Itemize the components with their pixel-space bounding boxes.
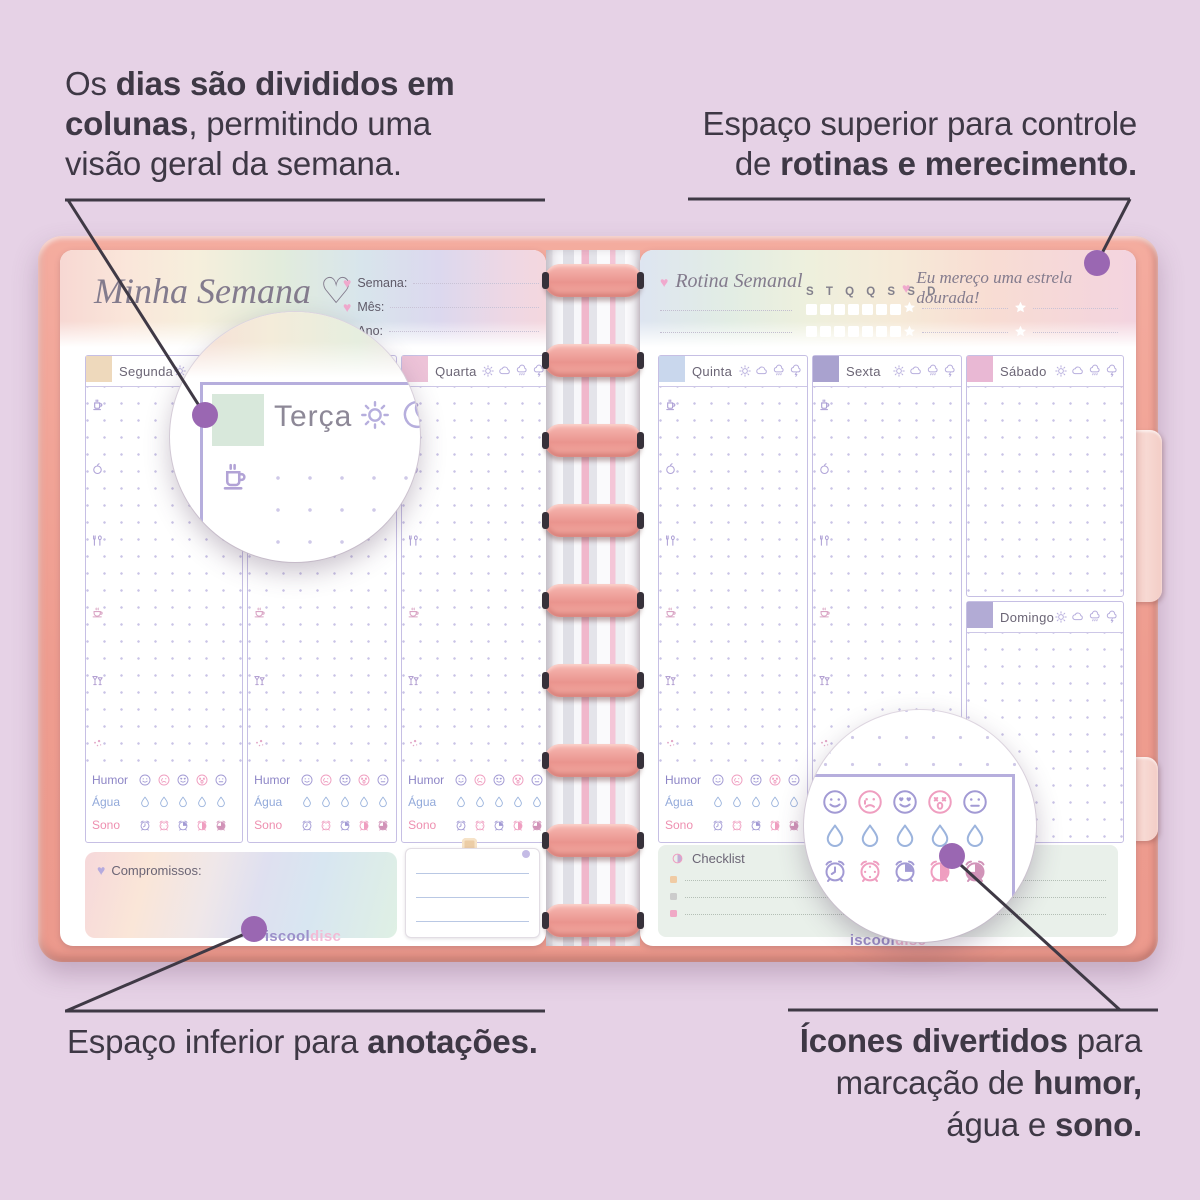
heart-icon: ♥ bbox=[902, 281, 910, 295]
water-drop-icon bbox=[157, 795, 171, 809]
tracker: Humor Água Sono bbox=[402, 764, 546, 842]
mood-shock-icon bbox=[925, 787, 955, 817]
magnified-dot-grid bbox=[262, 462, 412, 548]
mood-happy-icon bbox=[454, 773, 468, 787]
storm-cloud-icon bbox=[1105, 364, 1119, 378]
star-doodle-icon bbox=[822, 744, 834, 756]
cutlery-icon bbox=[663, 533, 678, 548]
mood-love-icon bbox=[890, 787, 920, 817]
coffee-icon bbox=[817, 397, 832, 412]
write-line bbox=[1033, 331, 1119, 333]
star-doodle-icon bbox=[838, 730, 846, 738]
agua-label: Água bbox=[408, 795, 452, 809]
binding-disc bbox=[544, 664, 642, 697]
weather-icons bbox=[892, 364, 957, 378]
sparkle-icon bbox=[522, 850, 530, 858]
mood-neutral-icon bbox=[787, 773, 801, 787]
day-color-square bbox=[212, 394, 264, 446]
write-line bbox=[922, 331, 1008, 333]
clock-dots-icon bbox=[319, 818, 333, 832]
magnified-column-border bbox=[1012, 774, 1015, 942]
clock-threequarter-icon bbox=[530, 818, 544, 832]
water-drop-icon bbox=[855, 821, 885, 851]
sun-icon bbox=[481, 364, 495, 378]
routine-checkbox-row bbox=[806, 326, 901, 337]
water-drop-icon bbox=[730, 795, 744, 809]
clock-quarter-icon bbox=[176, 818, 190, 832]
sono-label: Sono bbox=[254, 818, 298, 832]
mood-icons bbox=[454, 773, 544, 787]
sono-row: Sono bbox=[408, 816, 544, 834]
moon-icon bbox=[398, 396, 420, 432]
water-drop-icon bbox=[511, 795, 525, 809]
humor-row: Humor bbox=[665, 771, 801, 789]
rain-cloud-icon bbox=[926, 364, 940, 378]
storm-cloud-icon bbox=[789, 364, 803, 378]
write-line bbox=[413, 282, 539, 284]
cloud-icon bbox=[1071, 364, 1085, 378]
clock-threequarter-icon bbox=[214, 818, 228, 832]
day-name: Segunda bbox=[119, 364, 173, 379]
callout-segment: , permitindo uma bbox=[188, 105, 431, 142]
routine-checkbox bbox=[848, 304, 859, 315]
storm-cloud-icon bbox=[1105, 610, 1119, 624]
callout-segment: Espaço inferior para bbox=[67, 1023, 367, 1060]
water-drop-icon bbox=[195, 795, 209, 809]
water-drop-icon bbox=[338, 795, 352, 809]
coffee-icon bbox=[216, 458, 252, 494]
sono-row: Sono bbox=[665, 816, 801, 834]
binding-disc bbox=[544, 584, 642, 617]
callout-segment: colunas bbox=[65, 105, 188, 142]
water-icons bbox=[454, 795, 544, 809]
rain-cloud-icon bbox=[1088, 364, 1102, 378]
humor-label: Humor bbox=[665, 773, 709, 787]
mood-neutral-icon bbox=[960, 787, 990, 817]
mood-love-icon bbox=[338, 773, 352, 787]
clock-threequarter-icon bbox=[376, 818, 390, 832]
sparkle-icon bbox=[663, 737, 678, 752]
water-drop-icon bbox=[138, 795, 152, 809]
callout-segment: humor, bbox=[1033, 1064, 1142, 1101]
binding-disc bbox=[544, 504, 642, 537]
callout-segment: de bbox=[735, 145, 780, 182]
note-line bbox=[416, 897, 529, 898]
clock-quarter-icon bbox=[749, 818, 763, 832]
apple-icon bbox=[817, 461, 832, 476]
binding-disc bbox=[544, 344, 642, 377]
day-name: Quinta bbox=[692, 364, 732, 379]
sun-icon bbox=[892, 364, 906, 378]
routine-checkbox bbox=[862, 326, 873, 337]
magnified-column-border bbox=[200, 382, 203, 562]
brand-logo: iscooldisc bbox=[60, 928, 546, 945]
routine-checkbox bbox=[890, 326, 901, 337]
rain-cloud-icon bbox=[772, 364, 786, 378]
water-drop-icon bbox=[711, 795, 725, 809]
cloud-icon bbox=[1071, 610, 1085, 624]
routine-checkbox bbox=[848, 326, 859, 337]
water-drop-icon bbox=[376, 795, 390, 809]
rain-cloud-icon bbox=[515, 364, 529, 378]
clock-empty-icon bbox=[711, 818, 725, 832]
notes-card bbox=[405, 848, 540, 938]
day-color-square bbox=[659, 356, 685, 382]
water-icons bbox=[820, 821, 1002, 851]
field-label: Semana: bbox=[357, 276, 407, 290]
teacup-icon bbox=[90, 605, 105, 620]
magnified-tracker-grid bbox=[820, 787, 1002, 885]
rain-cloud-icon bbox=[1088, 610, 1102, 624]
water-drop-icon bbox=[357, 795, 371, 809]
cocktail-icon bbox=[252, 673, 267, 688]
mood-love-icon bbox=[176, 773, 190, 787]
cocktail-icon bbox=[663, 673, 678, 688]
water-drop-icon bbox=[820, 821, 850, 851]
star-icon bbox=[1013, 324, 1028, 339]
mood-sad-icon bbox=[855, 787, 885, 817]
magnified-column-border bbox=[200, 382, 420, 385]
page-title: Minha Semana ♡ bbox=[94, 270, 352, 312]
agua-row: Água bbox=[408, 793, 544, 811]
mood-sad-icon bbox=[319, 773, 333, 787]
water-icons bbox=[711, 795, 801, 809]
mood-love-icon bbox=[749, 773, 763, 787]
coffee-icon bbox=[90, 397, 105, 412]
write-line bbox=[922, 307, 1008, 309]
clock-dots-icon bbox=[473, 818, 487, 832]
checklist-bullet bbox=[670, 876, 677, 883]
water-drop-icon bbox=[960, 821, 990, 851]
binding-disc bbox=[544, 824, 642, 857]
mood-sad-icon bbox=[473, 773, 487, 787]
day-color-square bbox=[86, 356, 112, 382]
sparkle-icon bbox=[90, 737, 105, 752]
product-infographic: Minha Semana ♡ ♥Semana: ♥Mês: ♥Ano: Segu… bbox=[0, 0, 1200, 1200]
clock-quarter-icon bbox=[492, 818, 506, 832]
humor-row: Humor bbox=[92, 771, 236, 789]
write-line bbox=[390, 306, 539, 308]
teacup-icon bbox=[406, 605, 421, 620]
apple-icon bbox=[90, 461, 105, 476]
water-drop-icon bbox=[214, 795, 228, 809]
sleep-icons bbox=[820, 855, 1002, 885]
star-reward-row bbox=[902, 300, 1118, 315]
mood-happy-icon bbox=[300, 773, 314, 787]
clock-half-icon bbox=[357, 818, 371, 832]
day-name: Domingo bbox=[1000, 610, 1054, 625]
routine-checkbox bbox=[876, 304, 887, 315]
callout-segment: sono. bbox=[1055, 1106, 1142, 1143]
tracker: Humor Água Sono bbox=[86, 764, 242, 842]
star-icon bbox=[1013, 300, 1028, 315]
agua-row: Água bbox=[92, 793, 236, 811]
water-drop-icon bbox=[768, 795, 782, 809]
heart-icon: ♥ bbox=[97, 862, 105, 878]
water-drop-icon bbox=[300, 795, 314, 809]
callout-segment: água e bbox=[946, 1106, 1055, 1143]
coffee-icon bbox=[663, 397, 678, 412]
teacup-icon bbox=[663, 605, 678, 620]
mood-happy-icon bbox=[711, 773, 725, 787]
day-name: Sábado bbox=[1000, 364, 1047, 379]
sparkle-icon bbox=[406, 737, 421, 752]
cocktail-icon bbox=[817, 673, 832, 688]
callout-segment: para bbox=[1068, 1022, 1142, 1059]
field-semana: ♥Semana: bbox=[343, 274, 539, 292]
teacup-icon bbox=[817, 605, 832, 620]
mood-neutral-icon bbox=[376, 773, 390, 787]
note-line bbox=[416, 921, 529, 922]
checklist-bullet bbox=[670, 910, 677, 917]
mood-icons bbox=[138, 773, 228, 787]
checklist-bullet bbox=[670, 893, 677, 900]
cocktail-icon bbox=[406, 673, 421, 688]
callout-segment: Espaço superior para controle bbox=[703, 105, 1137, 142]
water-drop-icon bbox=[890, 821, 920, 851]
sono-row: Sono bbox=[92, 816, 236, 834]
mood-shock-icon bbox=[511, 773, 525, 787]
water-icons bbox=[300, 795, 390, 809]
callout-text-top-right: Espaço superior para controlede rotinas … bbox=[703, 104, 1137, 184]
day-header: Sexta bbox=[813, 356, 961, 387]
humor-label: Humor bbox=[92, 773, 136, 787]
cloud-icon bbox=[909, 364, 923, 378]
routine-checkbox bbox=[806, 326, 817, 337]
heart-icon: ♥ bbox=[343, 276, 351, 290]
storm-cloud-icon bbox=[943, 364, 957, 378]
routine-checkbox bbox=[820, 326, 831, 337]
callout-segment: marcação de bbox=[836, 1064, 1034, 1101]
water-drop-icon bbox=[749, 795, 763, 809]
callout-text-bottom-right: Ícones divertidos paramarcação de humor,… bbox=[800, 1020, 1142, 1146]
routine-checkbox bbox=[876, 326, 887, 337]
sono-label: Sono bbox=[92, 818, 136, 832]
water-drop-icon bbox=[492, 795, 506, 809]
mood-love-icon bbox=[492, 773, 506, 787]
water-drop-icon bbox=[473, 795, 487, 809]
heart-icon: ♥ bbox=[660, 275, 668, 289]
sun-icon bbox=[1054, 364, 1068, 378]
day-box-sabado: Sábado bbox=[966, 355, 1124, 597]
clock-quarter-icon bbox=[338, 818, 352, 832]
binding-disc bbox=[544, 744, 642, 777]
teacup-icon bbox=[252, 605, 267, 620]
magnifier-tracker-icons bbox=[804, 710, 1036, 942]
mood-shock-icon bbox=[195, 773, 209, 787]
binding-disc bbox=[544, 264, 642, 297]
routine-checkbox-row bbox=[806, 304, 901, 315]
magnified-day-name: Terça bbox=[274, 400, 352, 434]
binding-disc bbox=[544, 424, 642, 457]
clock-threequarter-icon bbox=[960, 855, 990, 885]
weather-icons bbox=[1054, 610, 1119, 624]
day-column-quarta: Quarta Humor Água Sono bbox=[401, 355, 546, 843]
callout-segment: dias são divididos em bbox=[116, 65, 455, 102]
cutlery-icon bbox=[817, 533, 832, 548]
star-icon bbox=[902, 300, 917, 315]
star-reward-row bbox=[902, 324, 1118, 339]
water-drop-icon bbox=[925, 821, 955, 851]
mood-happy-icon bbox=[820, 787, 850, 817]
callout-text-bottom-left: Espaço inferior para anotações. bbox=[67, 1022, 538, 1062]
day-header: Domingo bbox=[967, 602, 1123, 633]
compromissos-box: ♥Compromissos: bbox=[85, 852, 397, 938]
cloud-icon bbox=[755, 364, 769, 378]
day-name: Quarta bbox=[435, 364, 477, 379]
water-drop-icon bbox=[787, 795, 801, 809]
humor-row: Humor bbox=[408, 771, 544, 789]
day-header: Sábado bbox=[967, 356, 1123, 387]
sparkle-icon bbox=[252, 737, 267, 752]
clock-empty-icon bbox=[138, 818, 152, 832]
sono-row: Sono bbox=[254, 816, 390, 834]
water-icons bbox=[138, 795, 228, 809]
clock-empty-icon bbox=[300, 818, 314, 832]
routine-checkbox bbox=[834, 326, 845, 337]
sleep-icons bbox=[454, 818, 544, 832]
magnified-dot-grid bbox=[804, 710, 1036, 772]
sleep-icons bbox=[138, 818, 228, 832]
clock-dots-icon bbox=[730, 818, 744, 832]
write-line bbox=[660, 332, 792, 333]
agua-row: Água bbox=[665, 793, 801, 811]
binding-disc bbox=[544, 904, 642, 937]
clock-quarter-icon bbox=[890, 855, 920, 885]
mood-shock-icon bbox=[768, 773, 782, 787]
callout-segment: Os bbox=[65, 65, 116, 102]
agua-label: Água bbox=[665, 795, 709, 809]
routine-checkbox bbox=[834, 304, 845, 315]
day-column-quinta: Quinta Humor Água Sono bbox=[658, 355, 808, 843]
humor-label: Humor bbox=[254, 773, 298, 787]
compromissos-label: Compromissos: bbox=[111, 863, 201, 878]
sono-label: Sono bbox=[408, 818, 452, 832]
water-drop-icon bbox=[176, 795, 190, 809]
sun-icon bbox=[738, 364, 752, 378]
note-line bbox=[416, 873, 529, 874]
rotina-semanal-title: ♥Rotina Semanal bbox=[660, 270, 803, 293]
checklist-label: Checklist bbox=[692, 851, 745, 866]
sono-label: Sono bbox=[665, 818, 709, 832]
clock-dots-icon bbox=[855, 855, 885, 885]
callout-segment: rotinas e merecimento. bbox=[780, 145, 1137, 182]
day-notes-area bbox=[967, 387, 1123, 596]
page-title-text: Minha Semana bbox=[94, 271, 311, 311]
agua-label: Água bbox=[92, 795, 136, 809]
mood-happy-icon bbox=[138, 773, 152, 787]
routine-checkbox bbox=[806, 304, 817, 315]
cloud-icon bbox=[498, 364, 512, 378]
day-color-square bbox=[967, 356, 993, 382]
write-line bbox=[660, 310, 792, 311]
magnified-tracker-border bbox=[804, 774, 1014, 777]
routine-checkbox bbox=[890, 304, 901, 315]
humor-row: Humor bbox=[254, 771, 390, 789]
clock-half-icon bbox=[768, 818, 782, 832]
star-icon bbox=[902, 324, 917, 339]
water-drop-icon bbox=[530, 795, 544, 809]
sleep-icons bbox=[300, 818, 390, 832]
weather-icons bbox=[481, 364, 546, 378]
cocktail-icon bbox=[90, 673, 105, 688]
day-color-square bbox=[813, 356, 839, 382]
routine-checkbox bbox=[820, 304, 831, 315]
mood-neutral-icon bbox=[530, 773, 544, 787]
day-header: Quarta bbox=[402, 356, 546, 387]
clock-dots-icon bbox=[157, 818, 171, 832]
clock-half-icon bbox=[195, 818, 209, 832]
clock-threequarter-icon bbox=[787, 818, 801, 832]
day-notes-area bbox=[402, 387, 546, 764]
magnified-header-gradient bbox=[170, 312, 420, 378]
brand-part-1: iscool bbox=[265, 928, 310, 945]
agua-row: Água bbox=[254, 793, 390, 811]
sun-icon bbox=[1054, 610, 1068, 624]
sun-icon bbox=[358, 398, 392, 432]
tracker: Humor Água Sono bbox=[248, 764, 396, 842]
tracker: Humor Água Sono bbox=[659, 764, 807, 842]
apple-icon bbox=[663, 461, 678, 476]
day-notes-area bbox=[813, 387, 961, 764]
mood-neutral-icon bbox=[214, 773, 228, 787]
day-name: Sexta bbox=[846, 364, 881, 379]
water-drop-icon bbox=[454, 795, 468, 809]
mood-shock-icon bbox=[357, 773, 371, 787]
weather-icons bbox=[738, 364, 803, 378]
clock-half-icon bbox=[925, 855, 955, 885]
callout-segment: visão geral da semana. bbox=[65, 145, 402, 182]
day-notes-area bbox=[659, 387, 807, 764]
water-drop-icon bbox=[319, 795, 333, 809]
cutlery-icon bbox=[90, 533, 105, 548]
mood-icons bbox=[300, 773, 390, 787]
humor-label: Humor bbox=[408, 773, 452, 787]
rotina-label: Rotina Semanal bbox=[675, 270, 802, 293]
brand-part-2: disc bbox=[310, 928, 341, 945]
mood-sad-icon bbox=[157, 773, 171, 787]
callout-text-top-left: Os dias são divididos emcolunas, permiti… bbox=[65, 64, 455, 184]
callout-segment: anotações. bbox=[367, 1023, 537, 1060]
write-line bbox=[1033, 307, 1119, 309]
clock-empty-icon bbox=[820, 855, 850, 885]
clock-half-icon bbox=[511, 818, 525, 832]
mood-sad-icon bbox=[730, 773, 744, 787]
mood-icons bbox=[820, 787, 1002, 817]
clock-empty-icon bbox=[454, 818, 468, 832]
mood-icons bbox=[711, 773, 801, 787]
day-header: Quinta bbox=[659, 356, 807, 387]
agua-label: Água bbox=[254, 795, 298, 809]
sleep-icons bbox=[711, 818, 801, 832]
magnifier-terca: Terça bbox=[170, 312, 420, 562]
weather-icons bbox=[1054, 364, 1119, 378]
routine-checkbox bbox=[862, 304, 873, 315]
day-color-square bbox=[967, 602, 993, 628]
checklist-icon bbox=[670, 851, 685, 866]
callout-segment: Ícones divertidos bbox=[800, 1022, 1068, 1059]
